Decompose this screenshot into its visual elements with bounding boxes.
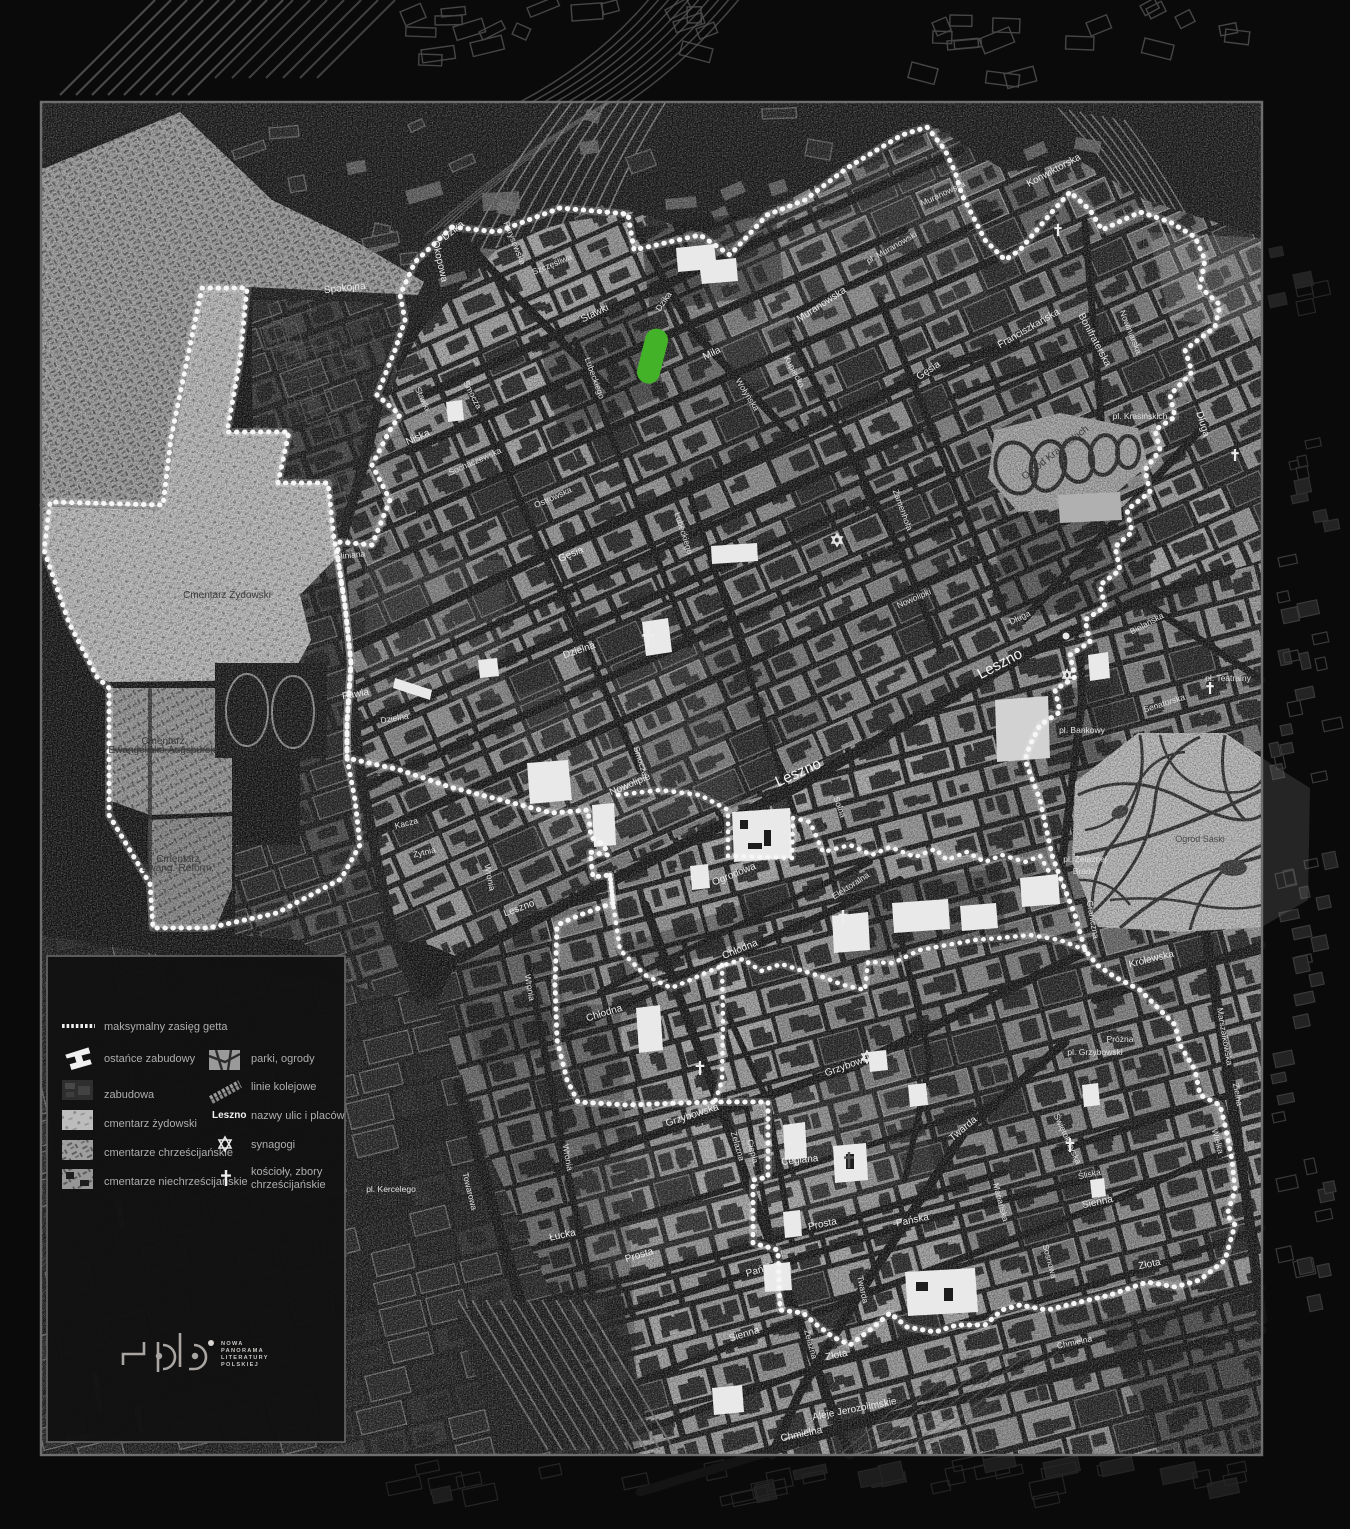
svg-text:kościoły, zbory: kościoły, zbory: [251, 1166, 323, 1178]
svg-text:cmentarze chrześcijańskie: cmentarze chrześcijańskie: [104, 1147, 233, 1159]
svg-text:Leszno: Leszno: [212, 1110, 246, 1121]
svg-text:zabudowa: zabudowa: [104, 1089, 155, 1101]
svg-text:Ogród Saski: Ogród Saski: [1175, 834, 1225, 844]
svg-text:LITERATURY: LITERATURY: [221, 1355, 269, 1361]
svg-text:nazwy ulic i placów: nazwy ulic i placów: [251, 1110, 345, 1122]
svg-text:NOWA: NOWA: [221, 1341, 244, 1347]
svg-text:synagogi: synagogi: [251, 1139, 295, 1151]
svg-text:Bramy: Bramy: [1073, 866, 1098, 876]
svg-text:Cmentarz Żydowski: Cmentarz Żydowski: [183, 588, 271, 601]
svg-text:cmentarz żydowski: cmentarz żydowski: [104, 1118, 197, 1130]
svg-text:maksymalny zasięg getta: maksymalny zasięg getta: [104, 1021, 228, 1033]
svg-text:ostańce zabudowy: ostańce zabudowy: [104, 1053, 196, 1065]
svg-text:pl. Żelaznej: pl. Żelaznej: [1063, 854, 1107, 864]
svg-text:chrześcijańskie: chrześcijańskie: [251, 1179, 326, 1191]
svg-text:PANORAMA: PANORAMA: [221, 1348, 264, 1354]
svg-text:POLSKIEJ: POLSKIEJ: [221, 1362, 259, 1368]
svg-text:Ewangelicko-Augsburski: Ewangelicko-Augsburski: [109, 745, 218, 756]
svg-text:pl. Grzybowski: pl. Grzybowski: [1067, 1047, 1122, 1057]
svg-text:pl. Bankowy: pl. Bankowy: [1059, 725, 1106, 735]
svg-text:Ewang.-Reform.: Ewang.-Reform.: [142, 863, 214, 874]
svg-text:Próżna: Próżna: [1107, 1034, 1134, 1044]
svg-text:parki, ogrody: parki, ogrody: [251, 1053, 315, 1065]
svg-text:pl. Krasińskich: pl. Krasińskich: [1113, 411, 1168, 421]
svg-text:pl. Kercelego: pl. Kercelego: [366, 1184, 416, 1194]
svg-text:pl. Teatralny: pl. Teatralny: [1205, 673, 1251, 683]
svg-text:linie kolejowe: linie kolejowe: [251, 1081, 316, 1093]
